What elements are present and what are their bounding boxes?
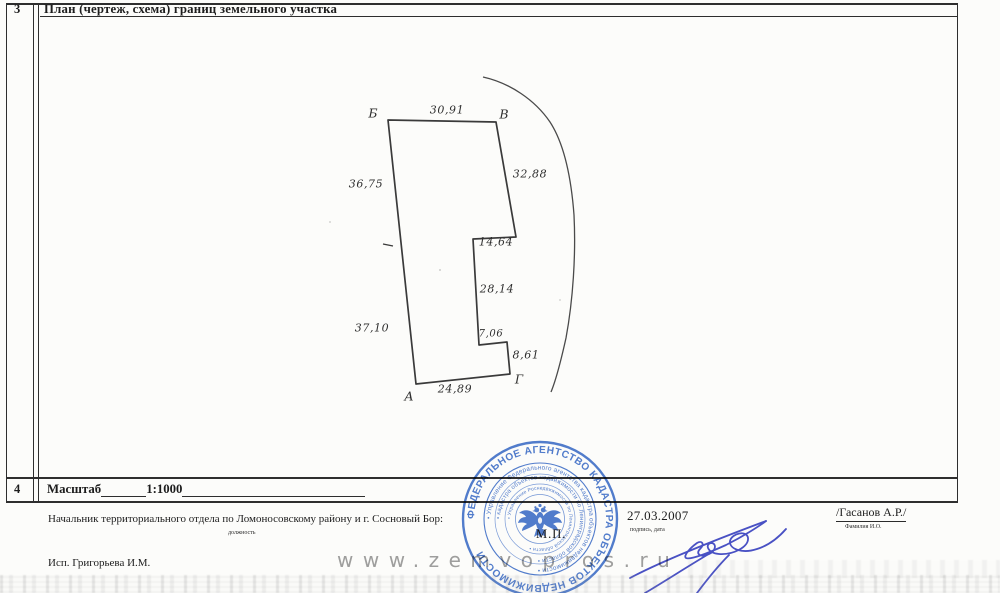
signature-flourish	[685, 521, 786, 558]
handwritten-signature	[0, 0, 1000, 593]
scanned-land-plot-document: { "header": { "row_number": "3", "title"…	[0, 0, 1000, 593]
scan-noise-band	[688, 560, 1000, 578]
